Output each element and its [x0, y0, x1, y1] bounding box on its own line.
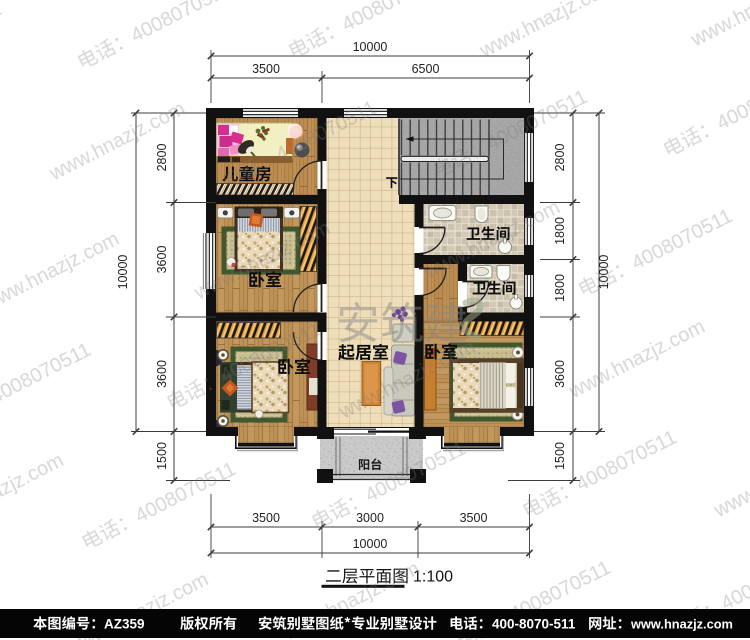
svg-text:1800: 1800 [553, 217, 567, 245]
svg-text:2800: 2800 [155, 144, 169, 172]
svg-text:2800: 2800 [553, 144, 567, 172]
svg-text:10000: 10000 [116, 255, 130, 290]
svg-text:1500: 1500 [553, 442, 567, 470]
svg-text:400-8070-511: 400-8070-511 [492, 617, 576, 632]
svg-text:3600: 3600 [155, 360, 169, 388]
svg-text:www.hnazjz.com: www.hnazjz.com [630, 617, 733, 632]
svg-text:3000: 3000 [356, 511, 384, 525]
svg-text:3600: 3600 [155, 246, 169, 274]
svg-text:3500: 3500 [252, 62, 280, 76]
svg-text:3500: 3500 [460, 511, 488, 525]
svg-text:10000: 10000 [353, 537, 388, 551]
svg-text:AZ359: AZ359 [104, 617, 145, 632]
svg-text:1800: 1800 [553, 274, 567, 302]
svg-text:3500: 3500 [252, 511, 280, 525]
svg-text:3600: 3600 [553, 360, 567, 388]
svg-text:6500: 6500 [412, 62, 440, 76]
svg-text:1500: 1500 [155, 442, 169, 470]
svg-text:10000: 10000 [353, 40, 388, 54]
